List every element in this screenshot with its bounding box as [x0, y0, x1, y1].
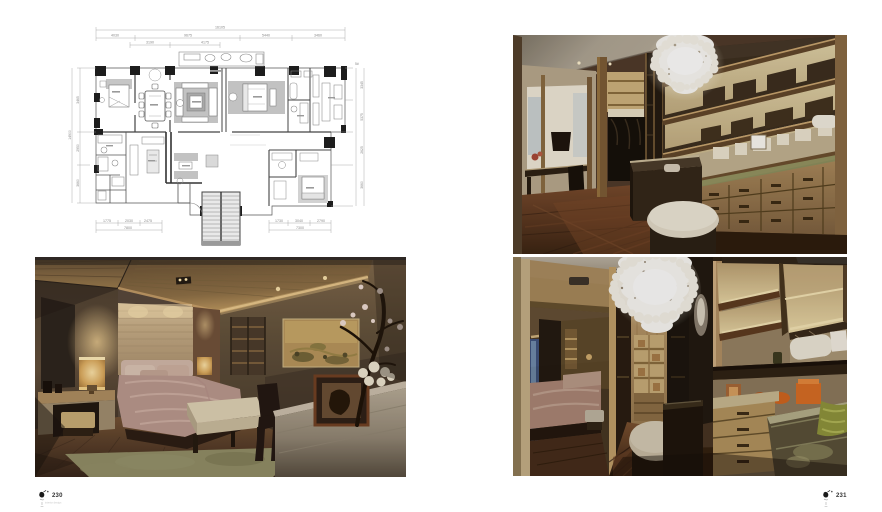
- svg-text:1730: 1730: [275, 219, 283, 223]
- svg-text:231: 231: [836, 493, 847, 499]
- svg-text:2030: 2030: [125, 219, 133, 223]
- svg-text:3660: 3660: [76, 179, 80, 187]
- svg-text:2790: 2790: [317, 219, 325, 223]
- svg-text:230: 230: [52, 493, 63, 499]
- svg-text:3040: 3040: [295, 219, 303, 223]
- svg-text:3460: 3460: [314, 34, 322, 38]
- svg-text:2625: 2625: [360, 146, 364, 154]
- svg-text:2950: 2950: [76, 144, 80, 152]
- svg-text:5#: 5#: [355, 62, 359, 66]
- svg-text:9675: 9675: [184, 34, 192, 38]
- svg-text:4030: 4030: [111, 34, 119, 38]
- svg-text:7300: 7300: [296, 226, 304, 230]
- svg-text:3345: 3345: [360, 81, 364, 89]
- svg-text:2475: 2475: [144, 219, 152, 223]
- svg-text:3190: 3190: [146, 41, 154, 45]
- svg-text:14900: 14900: [68, 130, 72, 140]
- svg-text:interior design: interior design: [45, 501, 62, 505]
- svg-text:5375: 5375: [360, 113, 364, 121]
- svg-text:3465: 3465: [76, 96, 80, 104]
- svg-text:7800: 7800: [124, 226, 132, 230]
- svg-text:4175: 4175: [201, 41, 209, 45]
- svg-text:3660: 3660: [360, 181, 364, 189]
- svg-text:16105: 16105: [215, 26, 225, 30]
- svg-text:1775: 1775: [103, 219, 111, 223]
- svg-text:5440: 5440: [262, 34, 270, 38]
